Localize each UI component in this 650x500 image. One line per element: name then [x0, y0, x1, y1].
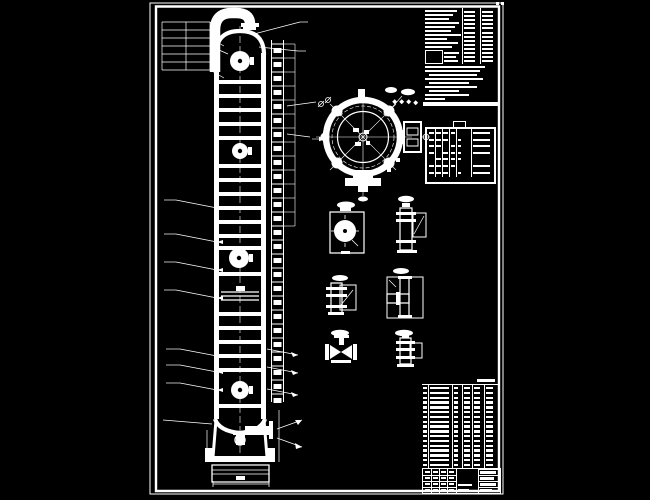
- table-cell-text: [482, 15, 493, 17]
- table-cell-text: [443, 139, 448, 141]
- tray-band: [219, 136, 261, 140]
- leader: [176, 200, 217, 208]
- sheet-count-text: [477, 379, 495, 382]
- table-divider: [472, 385, 473, 469]
- parts-row-text: [486, 440, 493, 442]
- parts-row-text: [486, 459, 493, 461]
- leader: [180, 349, 217, 356]
- parts-row-text: [423, 397, 427, 399]
- nozzle-s-stem: [358, 186, 368, 192]
- tray-band: [219, 368, 261, 372]
- top-section-view-part: [366, 141, 370, 145]
- detail-view-manhole-part: [343, 229, 347, 233]
- parts-row-text: [423, 425, 427, 427]
- top-section-view-part: [392, 99, 397, 104]
- ladder-mark: [274, 146, 282, 151]
- detail-view-elbow-nozzle: [387, 268, 423, 318]
- nozzle-sw: [332, 158, 343, 169]
- parts-row-text: [454, 411, 458, 413]
- detail-view-nozzle-c-part: [326, 294, 347, 297]
- tray-band: [219, 192, 261, 196]
- parts-row-text: [474, 449, 480, 451]
- parts-row-text: [423, 454, 427, 456]
- nozzle-s-flange: [345, 178, 381, 186]
- parts-row-text: [454, 425, 458, 427]
- feed-box: [236, 286, 245, 291]
- table-cell-text: [436, 158, 441, 160]
- parts-row-text: [423, 416, 427, 418]
- ladder-mark: [274, 384, 282, 389]
- drawing-sheet: [0, 0, 650, 500]
- parts-row-text: [430, 440, 449, 442]
- parts-row-text: [430, 464, 449, 466]
- detail-view-fitting-f-part: [402, 335, 409, 338]
- detail-view-valve-part: [339, 337, 344, 345]
- inset-box: [425, 50, 443, 64]
- table-cell-text: [473, 139, 490, 141]
- detail-view-nozzle-c-part: [328, 312, 344, 315]
- parts-row-text: [454, 401, 458, 403]
- detail-views: [325, 196, 426, 367]
- parts-row-text: [464, 416, 470, 418]
- table-cell-text: [436, 132, 441, 134]
- table-cell-text: [443, 165, 448, 167]
- tray-band: [219, 80, 261, 84]
- parts-row-text: [464, 449, 470, 451]
- tag-label: [398, 196, 414, 202]
- parts-row-text: [454, 392, 458, 394]
- parts-row-text: [486, 464, 493, 466]
- tray-band: [219, 312, 261, 316]
- manhole-flange: [250, 57, 254, 65]
- detail-view-fitting-f-part: [396, 348, 415, 351]
- ladder-mark: [274, 174, 282, 179]
- technical-requirements-panel: [423, 8, 500, 102]
- tag-label: [358, 197, 368, 202]
- parts-row-text: [474, 464, 480, 466]
- table-divider: [428, 385, 429, 469]
- top-section-view-part: [396, 158, 400, 162]
- note-text-line: [425, 22, 459, 24]
- leader: [176, 262, 217, 270]
- ladder-mark: [274, 104, 282, 109]
- manhole-center: [238, 149, 242, 153]
- parts-row-text: [474, 392, 480, 394]
- table-cell-text: [464, 27, 475, 29]
- table-cell-text: [458, 158, 461, 160]
- table-cell-text: [464, 32, 475, 34]
- parts-row-text: [430, 406, 449, 408]
- parts-row-text: [430, 425, 449, 427]
- parts-row-text: [464, 397, 470, 399]
- parts-row-text: [454, 459, 458, 461]
- top-section-view-part: [406, 99, 411, 104]
- table-cell-text: [464, 48, 475, 50]
- parts-row-text: [486, 421, 493, 423]
- table-cell-text: [429, 165, 434, 167]
- detail-view-manhole-part: [340, 207, 351, 211]
- parts-row-text: [486, 449, 493, 451]
- parts-row-text: [474, 430, 480, 432]
- note-text-line: [425, 18, 449, 20]
- shell-wall-left: [214, 53, 219, 419]
- detail-view-manhole-part: [352, 240, 358, 246]
- table-tab: [453, 121, 466, 128]
- ladder-mark: [274, 216, 282, 221]
- anchor-chair-right: [266, 448, 275, 456]
- table-cell-text: [464, 60, 475, 62]
- detail-view-manhole-part: [341, 251, 350, 254]
- detail-view-elbow-nozzle-part: [398, 276, 412, 279]
- title-cell-text: [458, 489, 469, 491]
- parts-row-text: [423, 411, 427, 413]
- top-section-view-part: [407, 128, 418, 135]
- parts-row-text: [486, 445, 493, 447]
- grid-line: [456, 469, 457, 493]
- parts-row-text: [430, 445, 449, 447]
- table-cell-text: [482, 40, 493, 42]
- tag-label: [401, 89, 415, 95]
- nozzle-nw: [332, 106, 343, 117]
- grid-line: [478, 487, 498, 488]
- parts-row-text: [430, 459, 449, 461]
- tray-band: [219, 122, 261, 126]
- table-cell-text: [482, 11, 493, 13]
- top-section-view-part: [387, 168, 391, 172]
- manhole-center: [237, 256, 241, 260]
- cad-viewport: [0, 0, 650, 500]
- table-cell-text: [473, 152, 490, 154]
- ladder-mark: [274, 132, 282, 137]
- parts-row-text: [474, 416, 480, 418]
- parts-row-text: [454, 440, 458, 442]
- parts-row-text: [454, 454, 458, 456]
- parts-row-text: [486, 425, 493, 427]
- parts-row-text: [454, 406, 458, 408]
- title-cell-text: [449, 489, 454, 491]
- title-cell-text: [425, 489, 430, 491]
- title-cell-text: [433, 477, 438, 479]
- table-divider: [452, 385, 453, 469]
- parts-row-text: [423, 387, 427, 389]
- parts-row-text: [474, 425, 480, 427]
- leader: [163, 420, 212, 424]
- parts-row-text: [423, 392, 427, 394]
- leader: [176, 290, 217, 298]
- title-cell-text: [433, 489, 438, 491]
- vapor-pipe-flange: [241, 23, 259, 27]
- nozzle-n-stem: [358, 89, 365, 99]
- top-section-view-part: [353, 128, 359, 132]
- parts-row-text: [486, 435, 493, 437]
- note-text-line: [425, 34, 461, 36]
- parts-row-text: [464, 445, 470, 447]
- parts-row-text: [423, 401, 427, 403]
- ladder-mark: [274, 342, 282, 347]
- note-text-line: [444, 56, 456, 58]
- detail-view-level-gauge: [396, 196, 426, 253]
- detail-view-nozzle-c-part: [326, 305, 347, 308]
- title-cell-text: [425, 471, 430, 473]
- table-cell-text: [482, 48, 493, 50]
- parts-row-text: [454, 449, 458, 451]
- ladder-mark: [274, 314, 282, 319]
- leader: [287, 134, 310, 137]
- ladder-mark: [274, 258, 282, 263]
- table-cell-text: [443, 172, 448, 174]
- parts-row-text: [486, 387, 493, 389]
- note-text-line: [429, 74, 477, 76]
- parts-row-text: [486, 411, 493, 413]
- table-cell-text: [436, 165, 441, 167]
- top-section-view-part: [364, 130, 369, 134]
- ladder-mark: [274, 76, 282, 81]
- ladder-mark: [274, 398, 282, 403]
- table-cell-text: [464, 56, 475, 58]
- parts-row-text: [474, 435, 480, 437]
- title-cell-text: [433, 483, 438, 485]
- detail-view-valve-part: [331, 360, 351, 363]
- title-cell-text: [425, 477, 430, 479]
- ladder-mark: [274, 188, 282, 193]
- ladder-mark: [274, 286, 282, 291]
- table-cell-text: [464, 44, 475, 46]
- parts-row-text: [464, 421, 470, 423]
- drawing-number-text: [480, 483, 496, 486]
- note-text-line: [425, 26, 455, 28]
- title-cell-text: [449, 483, 454, 485]
- table-cell-text: [482, 44, 493, 46]
- detail-view-nozzle-c-part: [341, 290, 353, 305]
- table-cell-text: [464, 36, 475, 38]
- note-text-line: [425, 10, 457, 12]
- table-divider: [456, 129, 457, 177]
- parts-row-text: [486, 401, 493, 403]
- parts-row-text: [430, 430, 449, 432]
- table-cell-text: [473, 145, 490, 147]
- detail-view-valve-part: [330, 345, 341, 359]
- title-cell-text: [441, 477, 446, 479]
- parts-row-text: [423, 435, 427, 437]
- table-cell-text: [436, 145, 441, 147]
- detail-view-valve-part: [325, 344, 329, 360]
- table-cell-text: [429, 132, 434, 134]
- title-cell-text: [441, 483, 446, 485]
- parts-row-text: [464, 425, 470, 427]
- title-cell-text: [425, 483, 430, 485]
- base-center-mark: [236, 476, 245, 480]
- table-cell-text: [443, 132, 448, 134]
- parts-row-text: [430, 392, 449, 394]
- parts-row-text: [474, 397, 480, 399]
- parts-row-text: [486, 430, 493, 432]
- tag-label: [385, 87, 397, 93]
- tray-band: [219, 164, 261, 168]
- parts-row-text: [474, 445, 480, 447]
- column-elevation-view: [205, 13, 295, 487]
- parts-row-text: [464, 401, 470, 403]
- corner-mark: [501, 2, 504, 5]
- table-cell-text: [482, 52, 493, 54]
- parts-row-text: [474, 454, 480, 456]
- table-divider: [435, 129, 436, 177]
- detail-view-level-gauge-part: [402, 203, 410, 207]
- note-text-line: [444, 60, 458, 62]
- ladder-mark: [274, 272, 282, 277]
- leader: [254, 22, 300, 34]
- tray-band: [219, 234, 261, 238]
- detail-view-valve-part: [334, 335, 349, 338]
- detail-view-fitting-f: [395, 330, 422, 367]
- ladder-mark: [274, 202, 282, 207]
- detail-view-nozzle-c-part: [326, 287, 347, 290]
- note-text-line: [425, 38, 447, 40]
- parts-row-text: [423, 464, 427, 466]
- manholes: [229, 51, 254, 399]
- tray-band: [219, 178, 261, 182]
- table-cell-text: [436, 172, 441, 174]
- tray-band: [219, 108, 261, 112]
- table-divider: [449, 129, 450, 177]
- tray-band: [219, 326, 261, 330]
- table-cell-text: [464, 11, 475, 13]
- table-cell-text: [464, 52, 475, 54]
- table-cell-text: [451, 152, 455, 154]
- parts-row-text: [423, 459, 427, 461]
- tray-band: [219, 206, 261, 210]
- table-cell-text: [429, 139, 434, 141]
- tag-label: [393, 268, 409, 274]
- parts-row-text: [474, 401, 480, 403]
- table-cell-text: [464, 40, 475, 42]
- parts-row-text: [464, 435, 470, 437]
- table-cell-text: [429, 152, 434, 154]
- table-cell-text: [436, 139, 441, 141]
- ladder-mark: [274, 230, 282, 235]
- note-text-line: [425, 30, 451, 32]
- parts-row-text: [454, 445, 458, 447]
- table-cell-text: [451, 165, 455, 167]
- parts-row-text: [474, 440, 480, 442]
- detail-view-level-gauge-part: [396, 240, 416, 243]
- parts-row-text: [430, 411, 449, 413]
- ladder-mark: [274, 328, 282, 333]
- table-cell-text: [458, 139, 461, 141]
- parts-row-text: [423, 430, 427, 432]
- detail-view-valve-part: [353, 344, 357, 360]
- leader: [180, 365, 217, 372]
- parts-row-text: [474, 411, 480, 413]
- table-cell-text: [473, 132, 490, 134]
- table-cell-text: [451, 145, 455, 147]
- detail-view-nozzle-c: [326, 275, 356, 315]
- parts-row-text: [454, 430, 458, 432]
- table-cell-text: [458, 172, 461, 174]
- ladder-mark: [274, 356, 282, 361]
- parts-row-text: [454, 421, 458, 423]
- parts-row-text: [486, 406, 493, 408]
- ladder-mark: [274, 118, 282, 123]
- manhole-flange: [249, 386, 253, 394]
- table-cell-text: [482, 27, 493, 29]
- parts-row-text: [454, 387, 458, 389]
- parts-row-text: [423, 406, 427, 408]
- top-section-view-part: [399, 99, 404, 104]
- nozzle-schedule-table: [425, 127, 496, 184]
- parts-row-text: [423, 445, 427, 447]
- parts-row-text: [430, 454, 449, 456]
- tray-band: [219, 404, 261, 408]
- detail-view-valve: [325, 330, 357, 363]
- parts-row-text: [454, 397, 458, 399]
- parts-row-text: [474, 421, 480, 423]
- table-cell-text: [464, 15, 475, 17]
- parts-row-text: [430, 435, 449, 437]
- note-text-line: [425, 86, 477, 88]
- side-outlet-flange: [269, 421, 273, 439]
- parts-row-text: [486, 397, 493, 399]
- ladder-mark: [274, 244, 282, 249]
- shell-wall-right: [261, 53, 266, 419]
- table-divider: [462, 385, 463, 469]
- table-cell-text: [443, 158, 448, 160]
- note-text-line: [425, 66, 485, 68]
- title-cell-text: [449, 477, 454, 479]
- grid-line: [478, 481, 498, 482]
- detail-view-elbow-nozzle-part: [396, 292, 400, 305]
- title-cell-text: [441, 489, 446, 491]
- parts-row-text: [454, 416, 458, 418]
- note-text-line: [425, 94, 469, 96]
- parts-row-text: [464, 464, 470, 466]
- ladder: [272, 40, 284, 403]
- parts-row-text: [464, 411, 470, 413]
- parts-row-text: [464, 392, 470, 394]
- arrowhead: [295, 443, 302, 449]
- drawing-number-text: [480, 477, 494, 480]
- manhole-center: [238, 59, 242, 63]
- table-cell-text: [451, 158, 455, 160]
- table-cell-text: [458, 152, 461, 154]
- drawing-number-text: [480, 489, 492, 492]
- tray-band: [219, 220, 261, 224]
- parts-row-text: [464, 454, 470, 456]
- parts-row-text: [464, 387, 470, 389]
- tray-band: [219, 94, 261, 98]
- note-text-line: [429, 82, 469, 84]
- parts-row-text: [464, 459, 470, 461]
- manhole-flange: [248, 147, 252, 155]
- title-cell-text: [449, 471, 454, 473]
- nozzle-s-neck: [353, 170, 373, 178]
- grid-line: [478, 469, 498, 470]
- note-text-line: [425, 14, 453, 16]
- note-text-line: [425, 46, 452, 48]
- leader: [176, 234, 217, 242]
- note-text-line: [425, 98, 445, 100]
- title-cell-text: [458, 484, 472, 486]
- ladder-mark: [274, 90, 282, 95]
- detail-view-level-gauge-part: [397, 250, 417, 253]
- detail-view-elbow-nozzle-part: [398, 315, 412, 318]
- top-section-view: [312, 87, 430, 202]
- ladder-mark: [274, 62, 282, 67]
- parts-row-text: [423, 449, 427, 451]
- title-cell-text: [433, 471, 438, 473]
- table-cell-text: [443, 152, 448, 154]
- table-divider: [484, 385, 485, 469]
- corner-mark: [496, 2, 499, 5]
